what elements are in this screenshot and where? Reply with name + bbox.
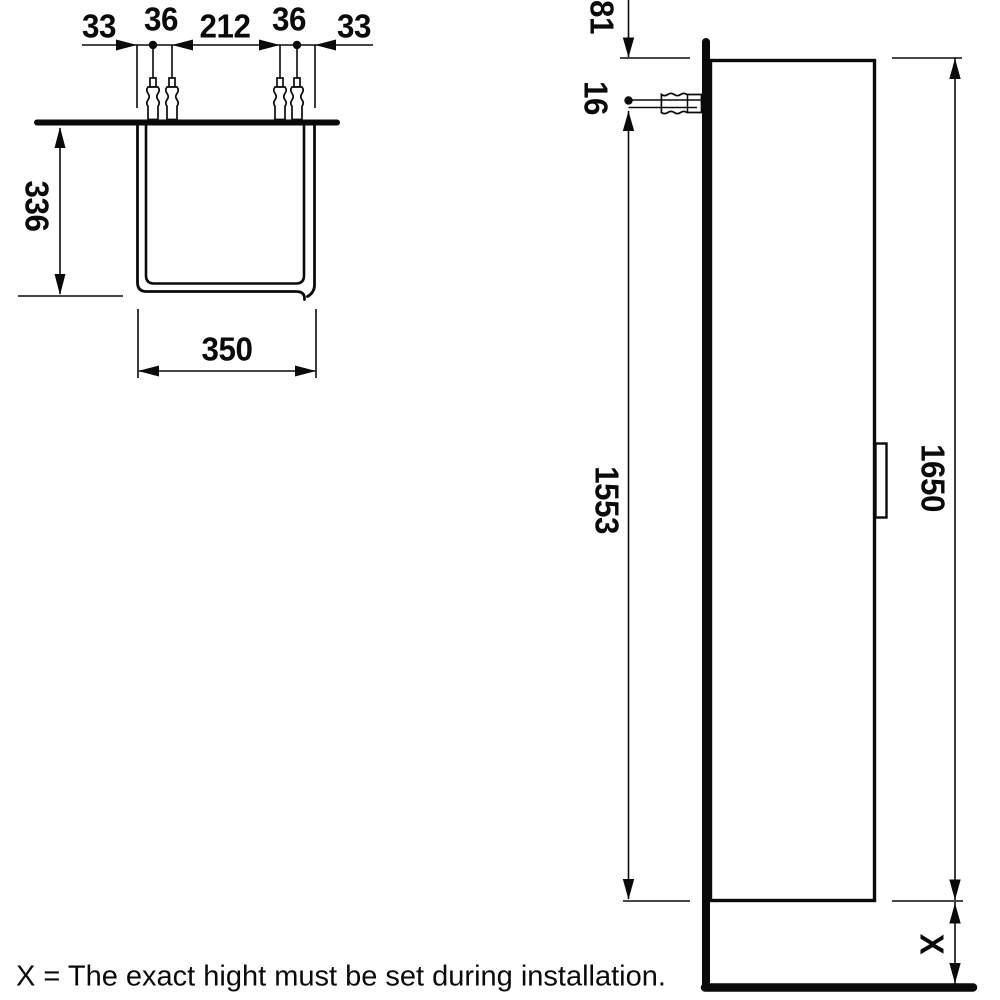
top-offset-dimension [620, 0, 690, 58]
dim-350: 350 [202, 333, 253, 366]
dim-16: 16 [580, 81, 613, 115]
dim-81: 81 [586, 0, 619, 34]
wall-plug-icons [147, 78, 304, 120]
wall-plug-side [624, 93, 701, 113]
door-handle [876, 444, 887, 518]
dim-1553: 1553 [591, 466, 624, 534]
caption-text: X = The exact hight must be set during i… [16, 961, 666, 994]
dim-212: 212 [200, 10, 251, 43]
wall-plug-icon [166, 78, 179, 120]
top-view [18, 40, 373, 379]
dim-36-right: 36 [272, 3, 306, 36]
dim-33-right: 33 [337, 10, 371, 43]
floor-clearance-dimension [949, 902, 960, 984]
dim-x: X [916, 934, 949, 954]
wall-plug-icon [274, 78, 287, 120]
dim-1650: 1650 [917, 444, 950, 512]
wall-plug-icon [147, 78, 160, 120]
technical-drawing: 33 36 212 36 33 336 350 81 16 1553 1650 … [0, 0, 1000, 1000]
screw-to-bottom-dimension [623, 111, 690, 901]
cabinet-top-outline [138, 125, 315, 300]
top-dimension-chain [82, 45, 373, 108]
dim-36-left: 36 [144, 3, 178, 36]
wall-plug-icon [661, 93, 701, 113]
dim-336: 336 [21, 181, 54, 232]
cabinet-side-outline [711, 61, 875, 901]
dim-33-left: 33 [82, 10, 116, 43]
wall-plug-icon [291, 78, 304, 120]
drawing-linework [0, 0, 1000, 1000]
